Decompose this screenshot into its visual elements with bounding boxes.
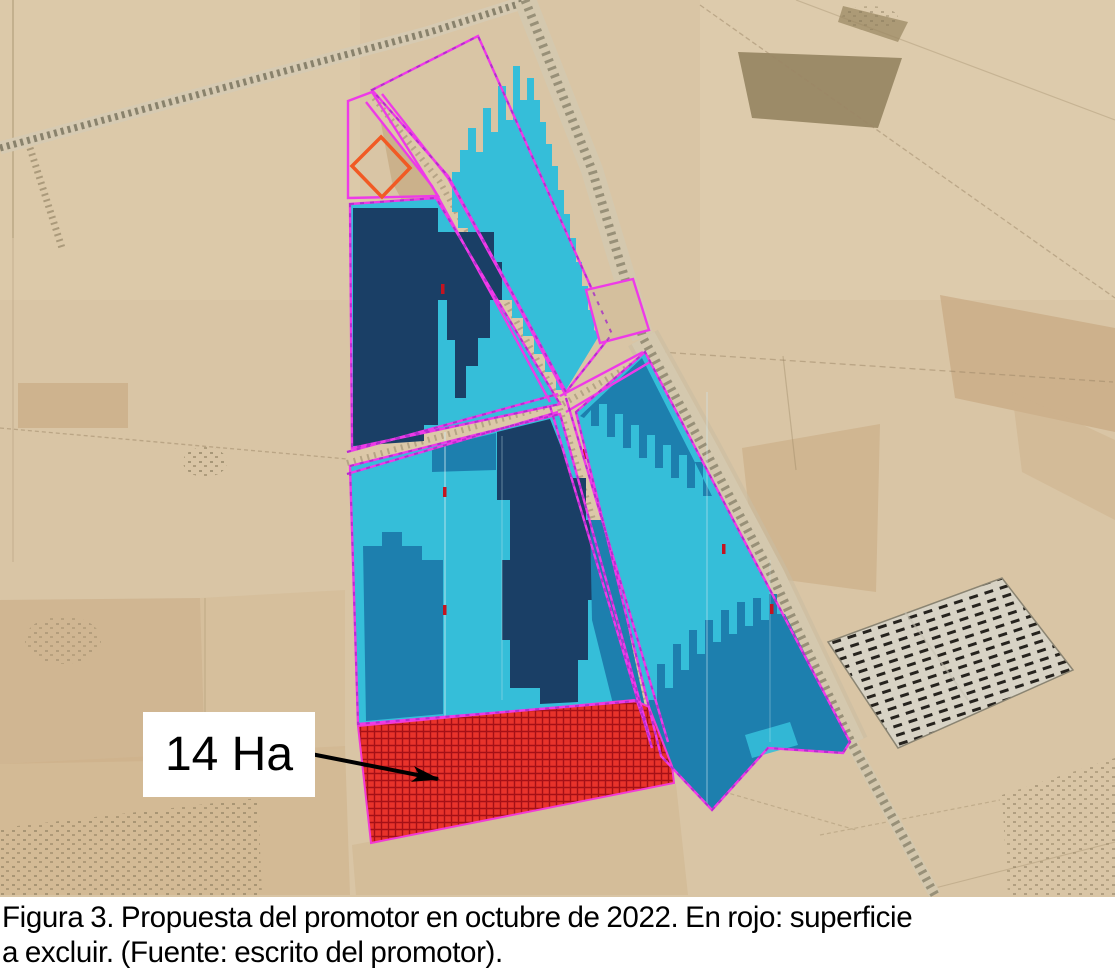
pv-area-lowerleft-medium-left	[363, 532, 443, 721]
caption-line-2: a excluir. (Fuente: escrito del promotor…	[2, 935, 1098, 970]
pv-area-leftmid-navy	[353, 208, 438, 446]
figure-page: 14 Ha Figura 3. Propuesta del promotor e…	[0, 0, 1115, 978]
map-figure: 14 Ha	[0, 0, 1115, 897]
figure-caption: Figura 3. Propuesta del promotor en octu…	[0, 897, 1115, 978]
area-annotation-label: 14 Ha	[143, 712, 315, 797]
area-label-text: 14 Ha	[165, 731, 293, 779]
caption-line-1: Figura 3. Propuesta del promotor en octu…	[2, 900, 1098, 935]
